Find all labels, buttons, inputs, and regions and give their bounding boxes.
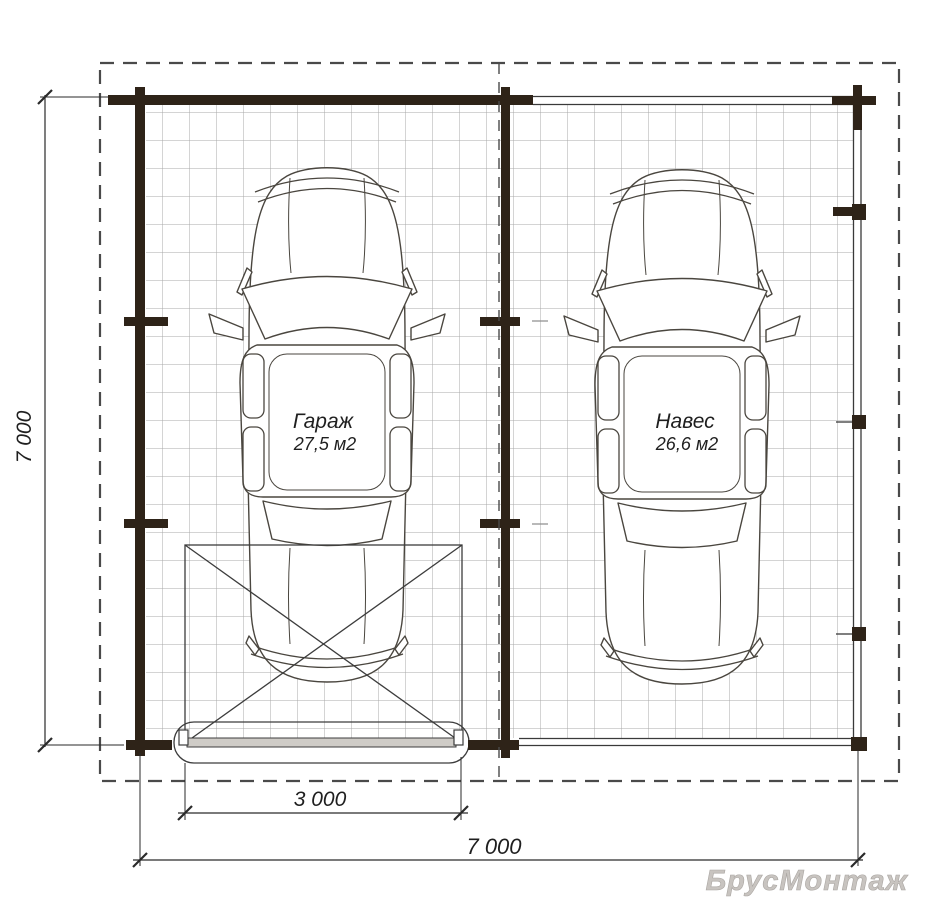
dimension-left-height: 7 000 — [13, 90, 124, 752]
wall-top — [108, 95, 533, 105]
log-joint — [480, 519, 520, 528]
log-joint — [124, 317, 168, 326]
room-label-garage: Гараж — [293, 410, 355, 433]
watermark: БрусМонтаж — [706, 865, 909, 897]
floor-plan-page: 7 000 3 000 7 000 Гараж 27,5 м2 Навес 26… — [0, 0, 941, 900]
post-tick — [833, 207, 852, 216]
room-area-canopy: 26,6 м2 — [655, 434, 718, 454]
wall-bottom-right — [468, 740, 519, 750]
wall-bottom-left — [126, 740, 172, 750]
dimension-door-width-value: 3 000 — [294, 788, 347, 811]
post — [852, 204, 866, 220]
post — [852, 627, 866, 641]
log-joint — [480, 317, 520, 326]
dimension-left-height-value: 7 000 — [13, 410, 36, 463]
room-area-garage: 27,5 м2 — [293, 434, 356, 454]
wall-middle — [501, 87, 510, 758]
log-joint — [124, 519, 168, 528]
wall-left — [135, 87, 145, 756]
room-label-canopy: Навес — [655, 410, 715, 433]
dimension-total-width-value: 7 000 — [466, 834, 522, 859]
post-corner-top — [853, 85, 862, 130]
floor-plan-drawing: 7 000 3 000 7 000 Гараж 27,5 м2 Навес 26… — [0, 0, 941, 900]
dimension-door-width: 3 000 — [178, 757, 468, 820]
post — [852, 415, 866, 429]
post-corner-bottom — [851, 737, 867, 751]
